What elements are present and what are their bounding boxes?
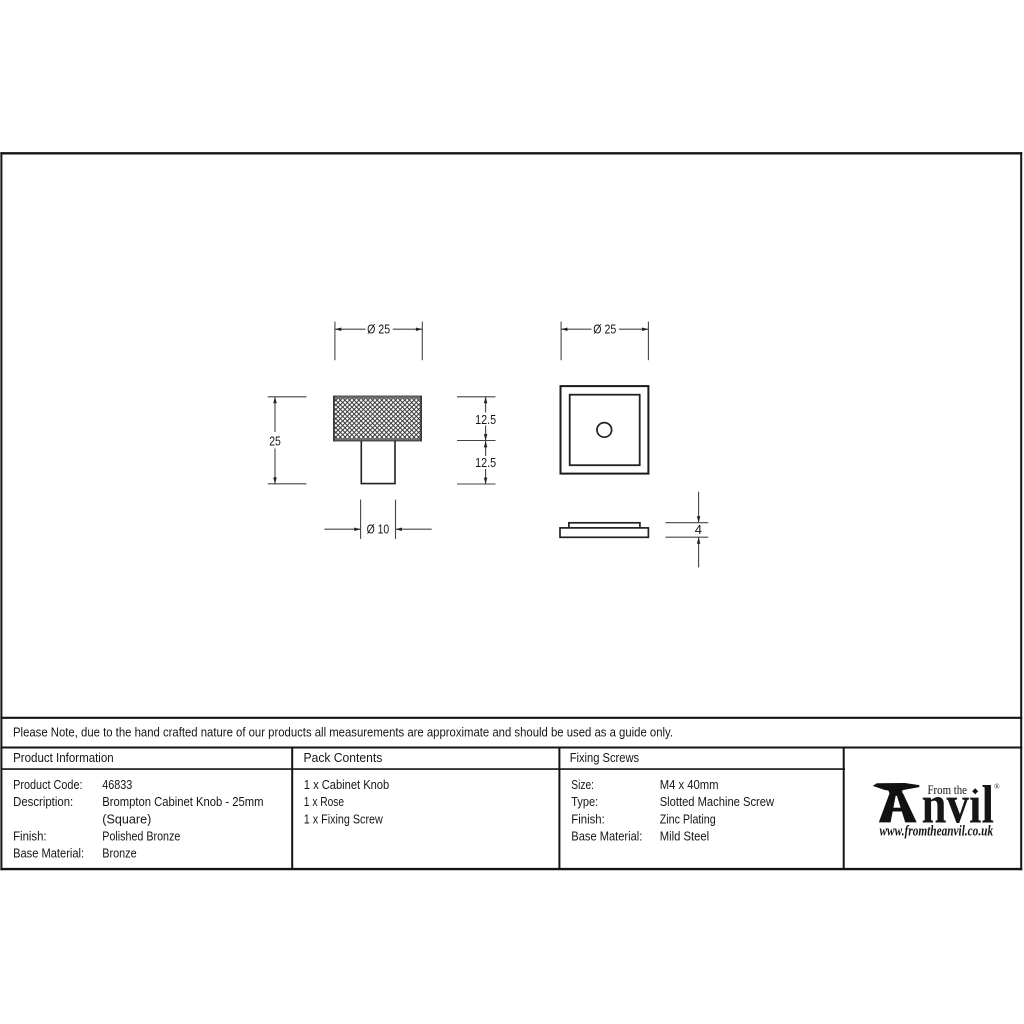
- svg-text:®: ®: [994, 782, 1000, 791]
- svg-text:25: 25: [269, 433, 281, 448]
- svg-text:Zinc Plating: Zinc Plating: [660, 812, 716, 826]
- svg-text:Description:: Description:: [13, 795, 73, 809]
- svg-text:Product Code:: Product Code:: [13, 778, 82, 792]
- svg-text:Bronze: Bronze: [102, 847, 136, 861]
- svg-text:(Square): (Square): [102, 812, 151, 826]
- svg-text:46833: 46833: [102, 778, 132, 792]
- svg-text:www.fromtheanvil.co.uk: www.fromtheanvil.co.uk: [880, 823, 994, 839]
- svg-text:Base Material:: Base Material:: [13, 847, 84, 861]
- svg-text:Ø 25: Ø 25: [367, 322, 390, 337]
- svg-text:Slotted Machine Screw: Slotted Machine Screw: [660, 795, 775, 809]
- svg-text:Please Note, due to the hand c: Please Note, due to the hand crafted nat…: [13, 726, 673, 740]
- svg-text:Mild Steel: Mild Steel: [660, 830, 710, 844]
- svg-text:Ø 25: Ø 25: [593, 322, 616, 337]
- svg-text:4: 4: [695, 522, 702, 537]
- svg-text:Pack Contents: Pack Contents: [304, 751, 383, 765]
- svg-text:Size:: Size:: [571, 778, 594, 792]
- svg-text:Ø 10: Ø 10: [367, 522, 390, 537]
- svg-text:M4 x 40mm: M4 x 40mm: [660, 778, 719, 792]
- svg-text:1 x Fixing Screw: 1 x Fixing Screw: [304, 812, 384, 826]
- svg-text:Brompton Cabinet Knob - 25mm: Brompton Cabinet Knob - 25mm: [102, 795, 263, 809]
- svg-text:1 x Rose: 1 x Rose: [304, 795, 344, 809]
- svg-text:Type:: Type:: [571, 795, 598, 809]
- svg-text:12.5: 12.5: [475, 412, 496, 427]
- svg-text:Finish:: Finish:: [571, 812, 605, 826]
- svg-text:1 x Cabinet Knob: 1 x Cabinet Knob: [304, 778, 389, 792]
- svg-text:12.5: 12.5: [475, 455, 496, 470]
- svg-text:Base Material:: Base Material:: [571, 830, 642, 844]
- svg-text:Finish:: Finish:: [13, 830, 47, 844]
- svg-text:Product Information: Product Information: [13, 751, 114, 765]
- svg-text:Polished Bronze: Polished Bronze: [102, 830, 180, 844]
- svg-text:Fixing Screws: Fixing Screws: [570, 751, 639, 765]
